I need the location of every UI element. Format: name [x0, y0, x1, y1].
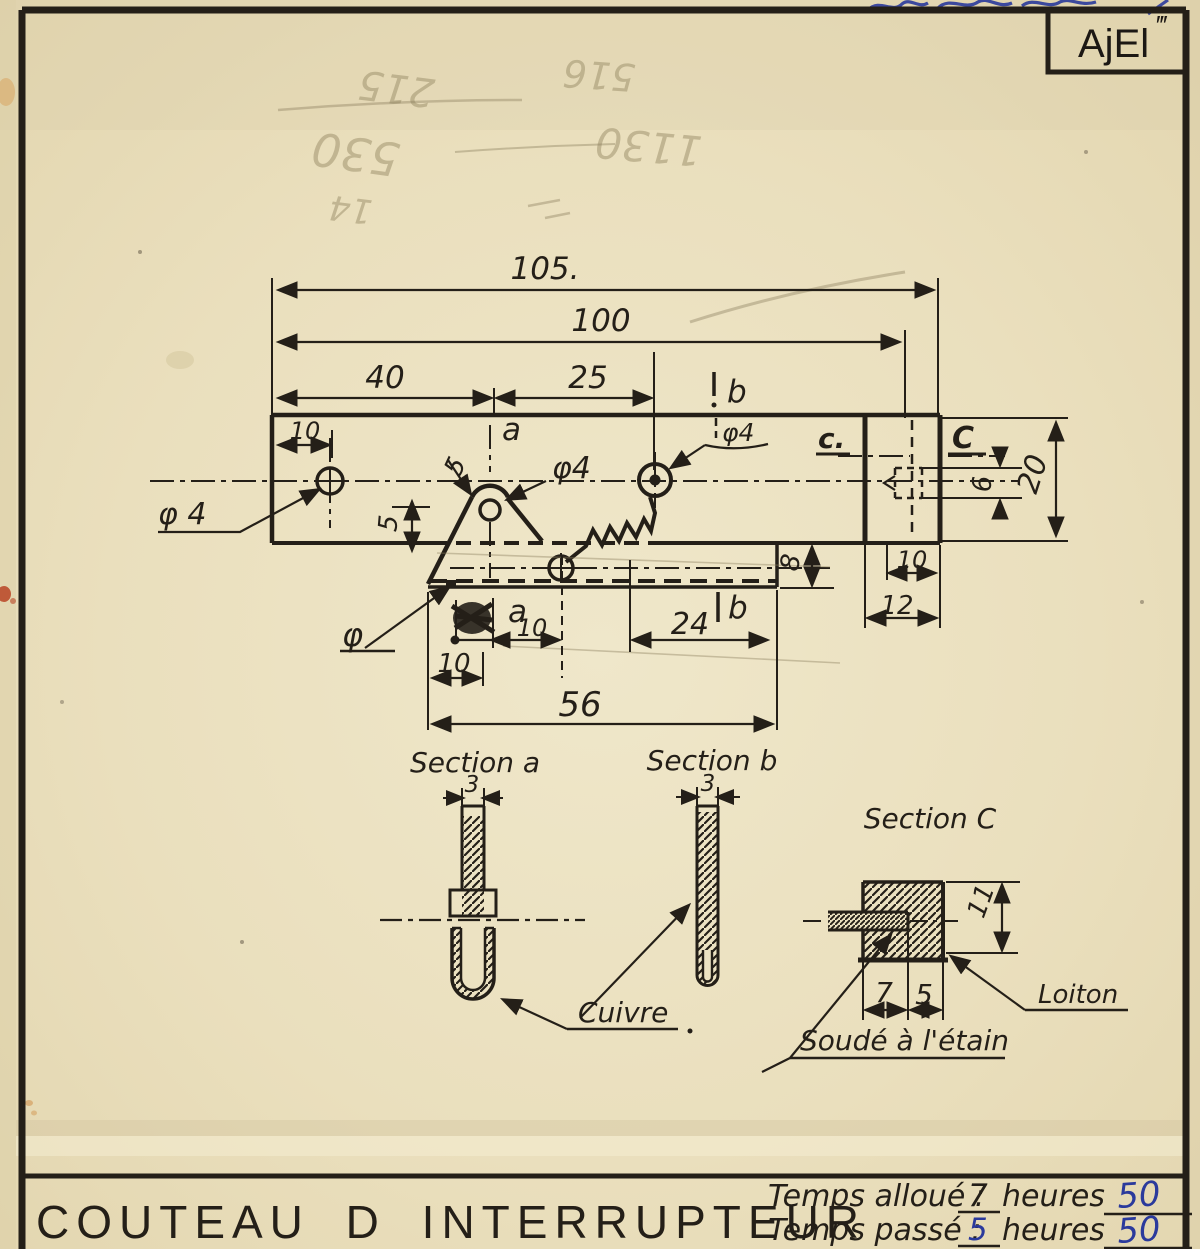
time-allocated-value: 7 [968, 1178, 988, 1214]
corner-code: AjEl [1078, 22, 1149, 66]
label-phi4-mid: φ4 [552, 451, 591, 486]
dim-10-end: 10 [897, 546, 928, 574]
svg-text:C: C [952, 421, 974, 456]
stain [25, 1100, 33, 1106]
ghost-number: 215 [356, 60, 437, 115]
scanned-technical-drawing: 215 530 516 1130 14 AjEl ‴ [0, 0, 1200, 1249]
dim-24: 24 [671, 607, 709, 642]
drawing-title: COUTEAU D INTERRUPTEUR [36, 1196, 866, 1248]
paper-crease-shadow [16, 1120, 1188, 1136]
dim-5: 5 [373, 514, 404, 533]
section-b-dim-3: 3 [701, 771, 716, 797]
dim-10-top: 10 [290, 417, 321, 445]
section-c-dim-7: 7 [875, 976, 893, 1009]
paper-crease-highlight [16, 1136, 1188, 1156]
label-phi4-right: φ4 [716, 418, 754, 447]
section-a-dim-3: 3 [465, 772, 480, 798]
svg-text:b: b [727, 374, 747, 410]
time-allocated-label: Temps alloué : [768, 1179, 985, 1214]
dim-10-left: 10 [437, 649, 470, 679]
time-spent-value: 5 [968, 1212, 988, 1248]
time-spent-unit: heures [1002, 1213, 1105, 1248]
laiton-text: Loiton [1038, 980, 1118, 1010]
section-a-marker-top: a [502, 412, 521, 448]
dim-12: 12 [880, 591, 913, 621]
cuivre-text: Cuivre [578, 996, 668, 1029]
section-c-dim-5: 5 [915, 978, 933, 1011]
label-phi-bottom: φ [342, 616, 363, 654]
section-c-title: Section C [864, 802, 997, 835]
svg-text:b: b [728, 590, 748, 626]
dim-25: 25 [568, 360, 607, 396]
dim-6: 6 [968, 476, 998, 493]
time-spent-mark: 50 [1116, 1209, 1162, 1249]
dim-overall-105: 105. [510, 251, 579, 287]
section-c-small-label: c. [816, 422, 850, 455]
label-phi4-left: φ 4 [158, 497, 206, 532]
drawing-canvas: 215 530 516 1130 14 AjEl ‴ [0, 0, 1200, 1249]
ghost-number: 1130 [593, 117, 704, 175]
dim-100: 100 [571, 303, 630, 339]
stain [31, 1111, 37, 1116]
ghost-number: 516 [561, 50, 636, 99]
ghost-number: 14 [327, 186, 375, 231]
dim-40: 40 [365, 360, 404, 396]
svg-text:c.: c. [818, 422, 845, 455]
dim-10-a: 10 [517, 614, 548, 642]
corner-primes: ‴ [1156, 10, 1168, 40]
paper-background [0, 0, 1200, 1249]
soude-text: Soudé à l'étain [800, 1024, 1009, 1057]
dim-56: 56 [558, 685, 601, 725]
red-stain-small [10, 598, 16, 604]
time-spent-label: Temps passé : [768, 1213, 981, 1248]
svg-text:φ4: φ4 [722, 418, 754, 447]
time-allocated-unit: heures [1002, 1179, 1105, 1214]
